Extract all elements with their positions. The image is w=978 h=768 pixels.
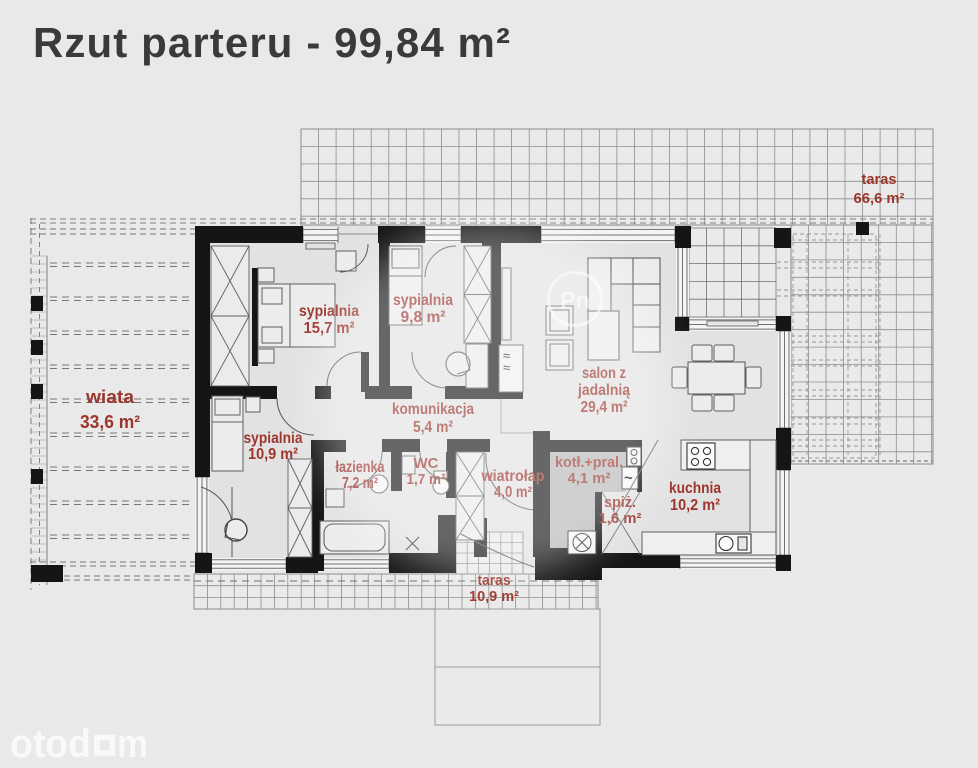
svg-text:66,6 m²: 66,6 m² bbox=[854, 191, 905, 207]
svg-text:otod: otod bbox=[10, 722, 91, 766]
svg-text:10,9 m²: 10,9 m² bbox=[248, 446, 298, 463]
svg-text:10,9 m²: 10,9 m² bbox=[469, 589, 519, 605]
svg-text:Pn: Pn bbox=[560, 287, 589, 313]
svg-text:10,2 m²: 10,2 m² bbox=[670, 497, 720, 514]
svg-text:taras: taras bbox=[862, 172, 897, 188]
svg-text:sypialnia: sypialnia bbox=[244, 430, 303, 447]
svg-text:kuchnia: kuchnia bbox=[669, 480, 721, 497]
svg-text:wiata: wiata bbox=[85, 387, 135, 407]
svg-text:m: m bbox=[117, 722, 148, 766]
svg-text:Rzut parteru - 99,84 m²: Rzut parteru - 99,84 m² bbox=[33, 19, 511, 66]
svg-text:33,6 m²: 33,6 m² bbox=[80, 412, 140, 432]
